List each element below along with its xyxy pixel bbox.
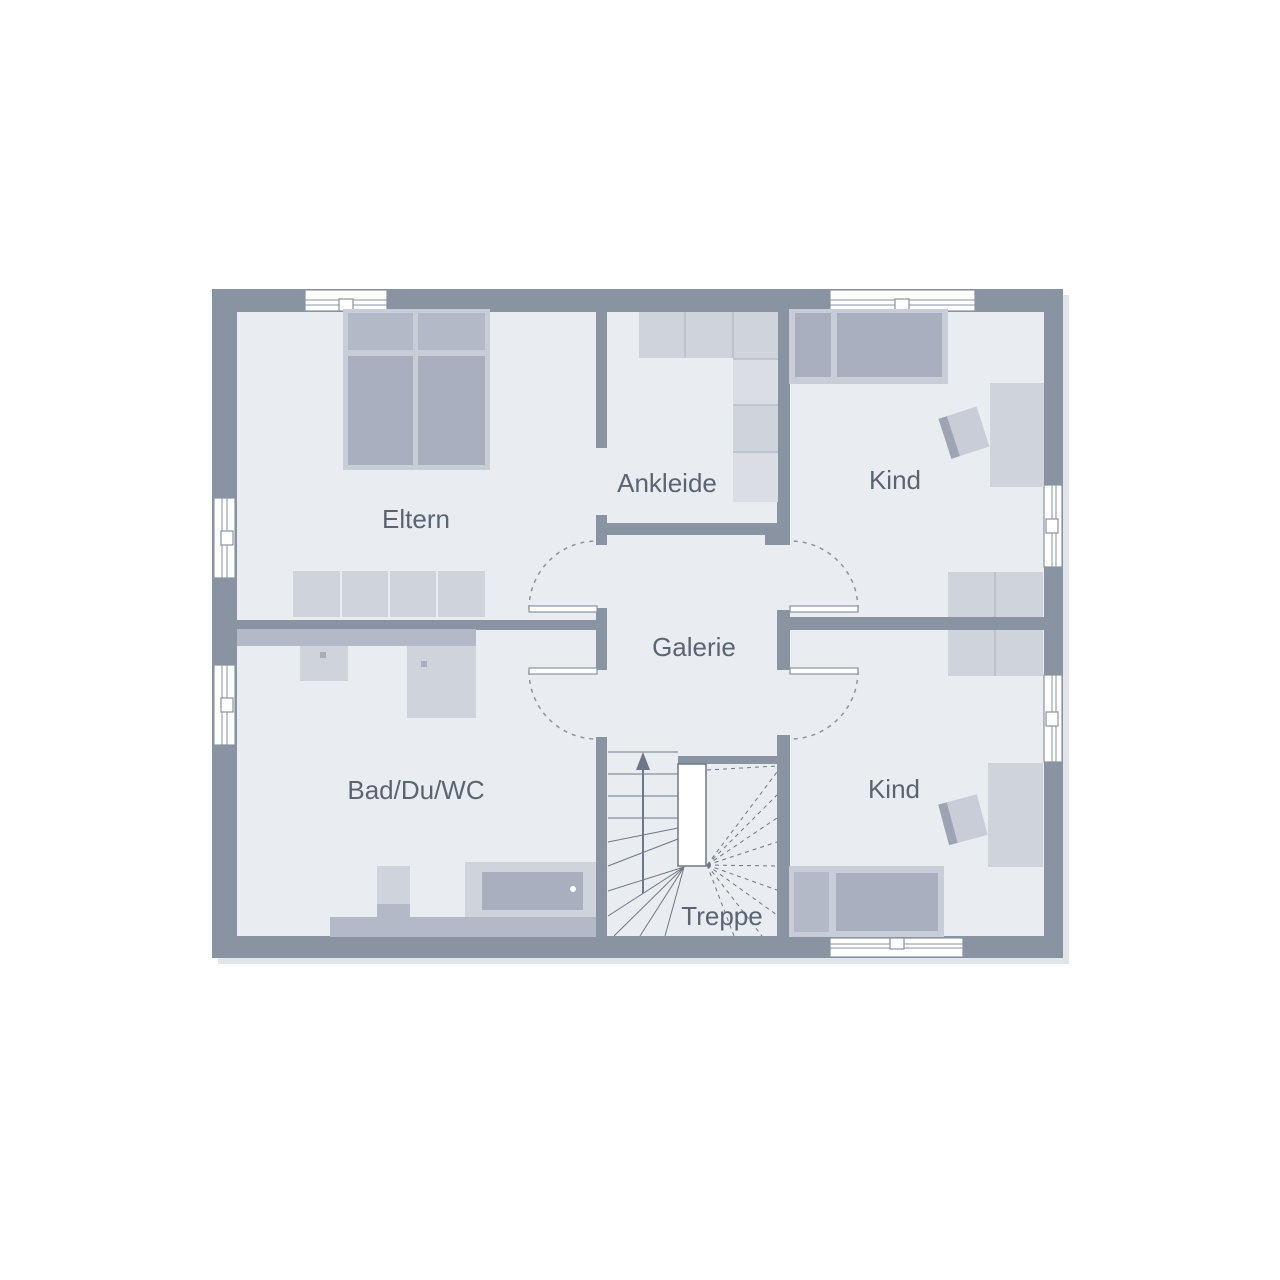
window-left-bad (214, 665, 235, 745)
wall-galerie-right-stub (777, 610, 790, 670)
outer-wall-left (212, 289, 237, 958)
floor-plan: Eltern Ankleide Kind Galerie Bad/Du/WC K… (0, 0, 1280, 1280)
bathtub (465, 862, 596, 917)
wall-eltern-bad (237, 620, 596, 630)
door-leaf (790, 606, 858, 612)
window-left-eltern (214, 498, 235, 578)
window-handle-icon (221, 531, 233, 545)
window-top-eltern (305, 290, 387, 311)
wall-ankleide-galerie (596, 523, 790, 535)
door-leaf (529, 606, 597, 612)
room-label-kind-bottom: Kind (868, 774, 920, 804)
toilet (377, 866, 410, 917)
closet-row-top (639, 312, 733, 358)
window-handle-icon (221, 698, 233, 712)
floor-plan-page: Eltern Ankleide Kind Galerie Bad/Du/WC K… (0, 0, 1280, 1280)
room-label-eltern: Eltern (382, 504, 450, 534)
drain-icon (570, 886, 576, 892)
double-bed (343, 309, 490, 470)
desk (990, 383, 1044, 487)
bed-mattress (348, 356, 413, 465)
bed-pillow (794, 872, 829, 932)
window-handle-icon (890, 938, 904, 949)
wall-treppe-top-bar (678, 756, 777, 764)
window-top-kind (830, 290, 975, 311)
bath-ledge (330, 917, 596, 937)
closet-column-right (733, 312, 778, 502)
drain-icon (421, 661, 427, 667)
washbasin (300, 646, 348, 681)
window-bottom-kind (830, 938, 963, 957)
vanity-counter (237, 629, 476, 646)
wall-jamb-right (765, 535, 790, 545)
window-right-kind-top (1044, 485, 1062, 567)
room-label-kind-top: Kind (869, 465, 921, 495)
bed-mattress (837, 313, 942, 377)
window-right-kind-bottom (1044, 675, 1062, 762)
room-label-treppe: Treppe (681, 901, 762, 931)
door-leaf (529, 668, 597, 674)
bed-mattress (418, 356, 485, 465)
single-bed (789, 309, 948, 384)
wall-eltern-ankleide (596, 312, 607, 448)
bed-pillow (418, 313, 485, 350)
stair-void (678, 764, 706, 866)
sideboard (948, 572, 1043, 617)
wall-kind-kind (790, 617, 1044, 630)
bed-pillow (348, 313, 413, 350)
bed-pillow (795, 313, 831, 377)
wardrobe (293, 571, 485, 617)
desk (988, 763, 1043, 867)
wall-treppe-kind (777, 735, 790, 936)
room-label-ankleide: Ankleide (617, 468, 717, 498)
room-label-galerie: Galerie (652, 632, 736, 662)
window-handle-icon (1046, 712, 1058, 726)
door-leaf (790, 668, 858, 674)
wall-bad-treppe (596, 737, 607, 936)
bed-mattress (836, 873, 938, 931)
single-bed (789, 866, 944, 937)
drain-icon (320, 652, 326, 658)
shower (407, 646, 476, 718)
room-label-bad: Bad/Du/WC (347, 775, 484, 805)
wardrobe (948, 630, 1043, 676)
wall-galerie-left-stub (596, 608, 607, 670)
outer-wall-right (1044, 289, 1063, 958)
wall-ankleide-kind (777, 312, 790, 523)
window-handle-icon (1046, 519, 1058, 533)
